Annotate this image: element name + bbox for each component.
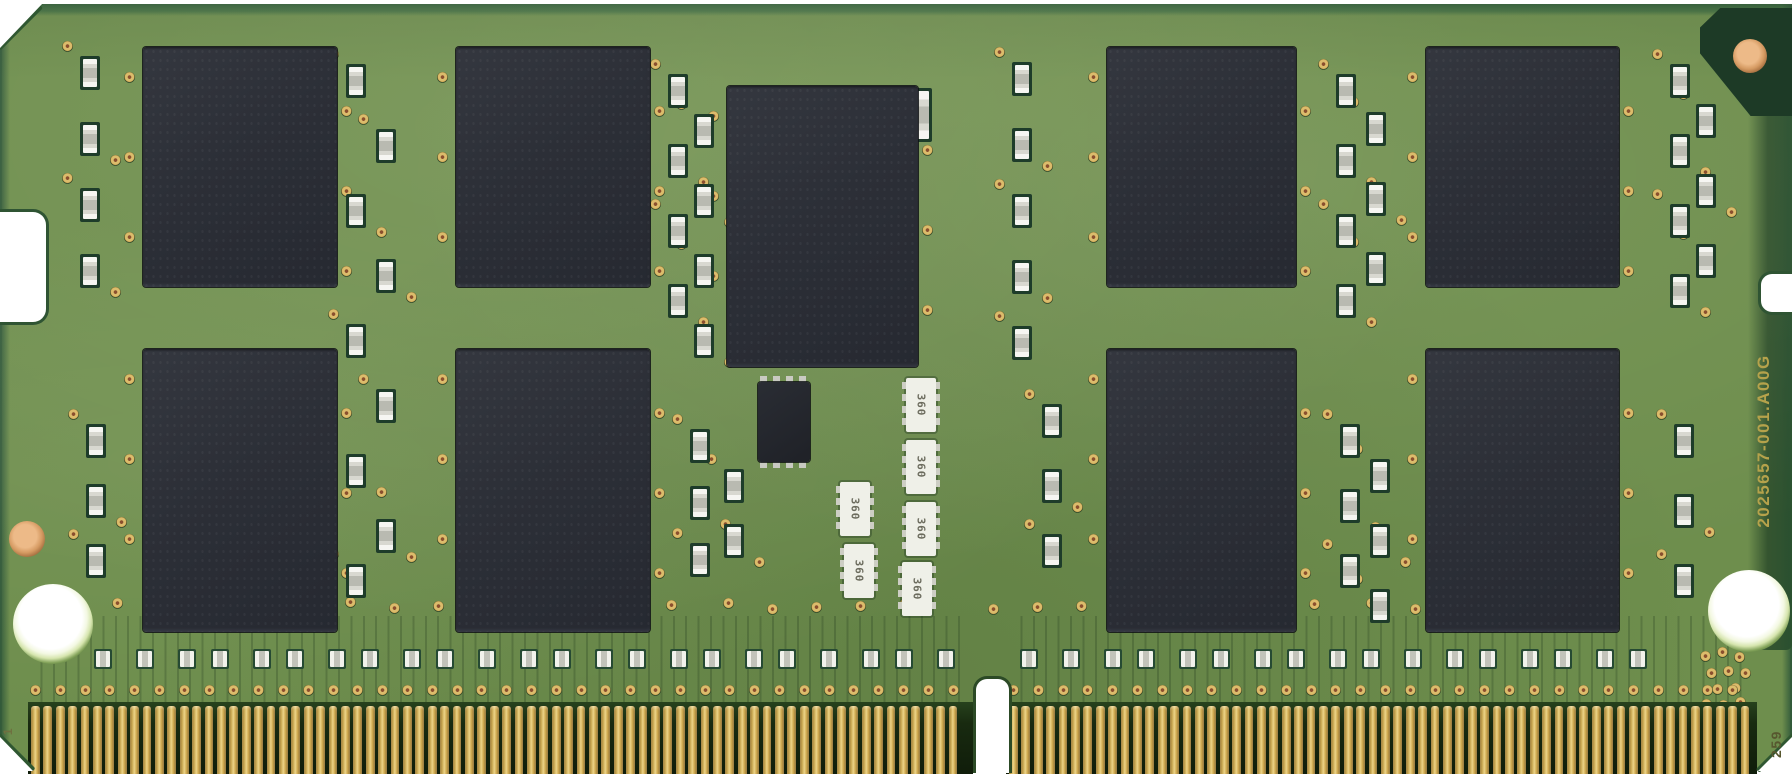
gold-pin xyxy=(812,706,821,774)
via-dot xyxy=(1366,317,1377,328)
via-dot xyxy=(654,408,665,419)
passive-component xyxy=(346,64,366,98)
part-number-text: 2025657-001.A00G xyxy=(1754,291,1774,591)
pin-one-text: 1 xyxy=(1,581,21,778)
passive-component xyxy=(1042,534,1062,568)
via-dot xyxy=(1734,652,1745,663)
gold-pin xyxy=(1703,706,1712,774)
via-dot xyxy=(406,292,417,303)
via-dot xyxy=(1656,409,1667,420)
via-dot xyxy=(1088,534,1099,545)
passive-component xyxy=(1674,424,1694,458)
via-dot xyxy=(994,47,1005,58)
gold-pin xyxy=(1455,706,1464,774)
gold-pin xyxy=(1319,706,1328,774)
gold-pin xyxy=(155,706,164,774)
via-dot xyxy=(1410,604,1421,615)
gold-pin xyxy=(1567,706,1576,774)
via-dot xyxy=(1300,266,1311,277)
via-dot xyxy=(358,114,369,125)
via-dot xyxy=(328,309,339,320)
passive-component xyxy=(1670,64,1690,98)
via-dot xyxy=(376,487,387,498)
gold-pin xyxy=(316,706,325,774)
capacitor-small xyxy=(1554,649,1572,669)
via-dot xyxy=(437,232,448,243)
via-dot xyxy=(112,598,123,609)
via-dot xyxy=(1717,647,1728,658)
copper-pad-circle xyxy=(1733,39,1767,73)
via-dot xyxy=(1042,293,1053,304)
gold-pin xyxy=(143,706,152,774)
via-dot xyxy=(922,305,933,316)
gold-pin xyxy=(1232,706,1241,774)
capacitor-small xyxy=(1287,649,1305,669)
via-dot xyxy=(1076,601,1087,612)
left-edge-notch xyxy=(0,209,49,325)
via-dot xyxy=(1712,684,1723,695)
gold-pin xyxy=(453,706,462,774)
gold-pin xyxy=(651,706,660,774)
capacitor-small xyxy=(520,649,538,669)
via-dot xyxy=(1088,72,1099,83)
via-dot xyxy=(625,685,636,696)
via-dot xyxy=(427,685,438,696)
gold-pin xyxy=(1356,706,1365,774)
via-dot xyxy=(228,685,239,696)
capacitor-small xyxy=(1104,649,1122,669)
gold-pin xyxy=(1369,706,1378,774)
gold-pin xyxy=(825,706,834,774)
passive-component xyxy=(80,56,100,90)
via-dot xyxy=(1454,685,1465,696)
gold-pin xyxy=(1096,706,1105,774)
passive-component xyxy=(668,214,688,248)
via-dot xyxy=(672,528,683,539)
gold-pin xyxy=(1691,706,1700,774)
gold-pin xyxy=(725,706,734,774)
passive-component xyxy=(376,519,396,553)
via-dot xyxy=(1578,685,1589,696)
via-dot xyxy=(1652,189,1663,200)
passive-component xyxy=(1340,424,1360,458)
via-dot xyxy=(437,72,448,83)
gold-pin xyxy=(1158,706,1167,774)
gold-pin xyxy=(1195,706,1204,774)
dram-chip xyxy=(727,86,918,367)
gold-pin xyxy=(949,706,958,774)
via-dot xyxy=(994,179,1005,190)
via-dot xyxy=(476,685,487,696)
dram-chip xyxy=(1107,349,1296,632)
via-dot xyxy=(1032,602,1043,613)
via-dot xyxy=(1033,685,1044,696)
via-dot xyxy=(767,604,778,615)
gold-pin xyxy=(614,706,623,774)
passive-component xyxy=(80,188,100,222)
via-dot xyxy=(179,685,190,696)
capacitor-small xyxy=(1521,649,1539,669)
photo-of-ram-module: 3603603603603603602025657-001.A00G2591 xyxy=(0,0,1792,778)
capacitor-small xyxy=(328,649,346,669)
gold-pin xyxy=(676,706,685,774)
via-dot xyxy=(376,227,387,238)
passive-component xyxy=(1370,459,1390,493)
via-dot xyxy=(811,602,822,613)
via-dot xyxy=(116,517,127,528)
via-dot xyxy=(654,186,665,197)
small-ic-pins-bottom xyxy=(760,462,808,468)
via-dot xyxy=(1380,685,1391,696)
gold-pin xyxy=(378,706,387,774)
gold-pin xyxy=(924,706,933,774)
gold-pin xyxy=(403,706,412,774)
via-dot xyxy=(1182,685,1193,696)
gold-pin xyxy=(1654,706,1663,774)
gold-pin xyxy=(837,706,846,774)
gold-pin xyxy=(1245,706,1254,774)
gold-pin xyxy=(1344,706,1353,774)
via-dot xyxy=(437,374,448,385)
via-dot xyxy=(923,685,934,696)
passive-component xyxy=(668,144,688,178)
via-dot xyxy=(341,266,352,277)
via-dot xyxy=(389,603,400,614)
via-dot xyxy=(922,225,933,236)
capacitor-small xyxy=(211,649,229,669)
via-dot xyxy=(68,409,79,420)
via-dot xyxy=(1623,408,1634,419)
gold-pin xyxy=(626,706,635,774)
gold-pin xyxy=(1555,706,1564,774)
gold-pin xyxy=(1257,706,1266,774)
via-dot xyxy=(1727,685,1738,696)
board-edge-top xyxy=(0,4,1792,16)
gold-pin xyxy=(205,706,214,774)
gold-pin xyxy=(56,706,65,774)
via-dot xyxy=(1702,685,1713,696)
gold-pin xyxy=(1170,706,1179,774)
via-dot xyxy=(110,287,121,298)
via-dot xyxy=(700,685,711,696)
resistor-network: 360 xyxy=(844,544,874,598)
resistor-network-label: 360 xyxy=(915,394,928,417)
via-dot xyxy=(1623,266,1634,277)
via-dot xyxy=(55,685,66,696)
via-dot xyxy=(650,199,661,210)
via-dot xyxy=(1740,668,1751,679)
passive-component xyxy=(1696,244,1716,278)
via-dot xyxy=(402,685,413,696)
via-dot xyxy=(1024,389,1035,400)
resistor-network: 360 xyxy=(906,502,936,556)
capacitor-small xyxy=(1596,649,1614,669)
via-dot xyxy=(1322,409,1333,420)
capacitor-small xyxy=(94,649,112,669)
capacitor-small xyxy=(1629,649,1647,669)
gold-pin xyxy=(763,706,772,774)
capacitor-small xyxy=(403,649,421,669)
via-dot xyxy=(124,152,135,163)
via-dot xyxy=(433,601,444,612)
via-dot xyxy=(1132,685,1143,696)
via-dot xyxy=(1300,186,1311,197)
via-dot xyxy=(452,685,463,696)
passive-component xyxy=(668,284,688,318)
passive-component xyxy=(86,424,106,458)
via-dot xyxy=(1088,374,1099,385)
via-dot xyxy=(988,604,999,615)
capacitor-small xyxy=(1179,649,1197,669)
via-dot xyxy=(1072,502,1083,513)
passive-component xyxy=(1336,144,1356,178)
via-dot xyxy=(1281,685,1292,696)
via-dot xyxy=(1706,668,1717,679)
via-dot xyxy=(352,685,363,696)
passive-component xyxy=(694,324,714,358)
passive-component xyxy=(376,259,396,293)
via-dot xyxy=(1206,685,1217,696)
gold-pin xyxy=(254,706,263,774)
via-dot xyxy=(994,311,1005,322)
via-dot xyxy=(1088,152,1099,163)
capacitor-small xyxy=(1062,649,1080,669)
via-dot xyxy=(848,685,859,696)
capacitor-small xyxy=(361,649,379,669)
gold-pin xyxy=(428,706,437,774)
capacitor-small xyxy=(478,649,496,669)
capacitor-small xyxy=(745,649,763,669)
gold-pin xyxy=(217,706,226,774)
gold-pin xyxy=(68,706,77,774)
gold-pin xyxy=(1505,706,1514,774)
via-dot xyxy=(501,685,512,696)
via-dot xyxy=(129,685,140,696)
via-dot xyxy=(1407,534,1418,545)
connector-key-notch xyxy=(973,676,1012,773)
capacitor-small xyxy=(595,649,613,669)
via-dot xyxy=(1300,106,1311,117)
via-dot xyxy=(1082,685,1093,696)
via-dot xyxy=(1088,232,1099,243)
resistor-network: 360 xyxy=(906,440,936,494)
passive-component xyxy=(1336,284,1356,318)
via-dot xyxy=(948,685,959,696)
via-dot xyxy=(1088,454,1099,465)
gold-pin xyxy=(564,706,573,774)
via-dot xyxy=(437,454,448,465)
gold-pin xyxy=(81,706,90,774)
via-dot xyxy=(124,72,135,83)
via-dot xyxy=(278,685,289,696)
via-dot xyxy=(774,685,785,696)
gold-pin xyxy=(1046,706,1055,774)
via-dot xyxy=(1300,568,1311,579)
gold-pin xyxy=(577,706,586,774)
gold-pin xyxy=(1108,706,1117,774)
passive-component xyxy=(690,543,710,577)
via-dot xyxy=(328,685,339,696)
dram-chip xyxy=(1426,349,1619,632)
gold-pin xyxy=(1666,706,1675,774)
via-dot xyxy=(1405,685,1416,696)
gold-pin xyxy=(1294,706,1303,774)
via-dot xyxy=(1396,215,1407,226)
via-dot xyxy=(1318,199,1329,210)
dram-chip xyxy=(1426,47,1619,287)
via-dot xyxy=(799,685,810,696)
via-dot xyxy=(675,685,686,696)
gold-pin xyxy=(329,706,338,774)
gold-pin xyxy=(477,706,486,774)
via-dot xyxy=(551,685,562,696)
gold-pin xyxy=(1083,706,1092,774)
via-dot xyxy=(1024,519,1035,530)
gold-pin xyxy=(465,706,474,774)
via-dot xyxy=(124,534,135,545)
via-dot xyxy=(650,59,661,70)
passive-component xyxy=(724,524,744,558)
gold-pin xyxy=(1183,706,1192,774)
via-dot xyxy=(1623,488,1634,499)
small-ic-chip xyxy=(758,382,810,462)
via-dot xyxy=(253,685,264,696)
capacitor-small xyxy=(895,649,913,669)
via-dot xyxy=(1603,685,1614,696)
via-dot xyxy=(666,600,677,611)
resistor-network: 360 xyxy=(902,562,932,616)
passive-component xyxy=(1042,469,1062,503)
gold-pin xyxy=(1517,706,1526,774)
via-dot xyxy=(1318,59,1329,70)
via-dot xyxy=(406,552,417,563)
passive-component xyxy=(1012,62,1032,96)
gold-pin xyxy=(601,706,610,774)
resistor-network-label: 360 xyxy=(849,498,862,521)
gold-pin xyxy=(862,706,871,774)
gold-pin xyxy=(1418,706,1427,774)
gold-pin xyxy=(180,706,189,774)
gold-pin xyxy=(750,706,759,774)
passive-component xyxy=(376,129,396,163)
passive-component xyxy=(694,254,714,288)
passive-component xyxy=(1696,104,1716,138)
capacitor-small xyxy=(937,649,955,669)
gold-pin xyxy=(1393,706,1402,774)
capacitor-small xyxy=(1404,649,1422,669)
gold-pin xyxy=(589,706,598,774)
passive-component xyxy=(1370,524,1390,558)
gold-pin xyxy=(118,706,127,774)
via-dot xyxy=(1355,685,1366,696)
via-dot xyxy=(526,685,537,696)
via-dot xyxy=(154,685,165,696)
via-dot xyxy=(437,152,448,163)
capacitor-small xyxy=(703,649,721,669)
via-dot xyxy=(1628,685,1639,696)
gold-pin xyxy=(1406,706,1415,774)
gold-pin xyxy=(688,706,697,774)
gold-pin xyxy=(1021,706,1030,774)
gold-pin xyxy=(1629,706,1638,774)
via-dot xyxy=(1623,106,1634,117)
gold-pin xyxy=(738,706,747,774)
via-dot xyxy=(341,488,352,499)
dram-chip xyxy=(456,349,650,632)
capacitor-small xyxy=(286,649,304,669)
via-dot xyxy=(1407,374,1418,385)
corner-number-text: 259 xyxy=(1768,594,1788,778)
via-dot xyxy=(1700,307,1711,318)
passive-component xyxy=(1340,489,1360,523)
passive-component xyxy=(346,564,366,598)
passive-component xyxy=(1340,554,1360,588)
passive-component xyxy=(80,122,100,156)
via-dot xyxy=(1652,49,1663,60)
gold-pin xyxy=(502,706,511,774)
resistor-network-label: 360 xyxy=(853,560,866,583)
resistor-network: 360 xyxy=(906,378,936,432)
gold-pin xyxy=(515,706,524,774)
via-dot xyxy=(1322,539,1333,550)
via-dot xyxy=(1309,599,1320,610)
gold-pin xyxy=(800,706,809,774)
via-dot xyxy=(1107,685,1118,696)
gold-pin xyxy=(899,706,908,774)
gold-pin xyxy=(1269,706,1278,774)
via-dot xyxy=(1623,568,1634,579)
gold-pin xyxy=(31,706,40,774)
passive-component xyxy=(1674,564,1694,598)
via-dot xyxy=(1623,186,1634,197)
capacitor-small xyxy=(553,649,571,669)
passive-component xyxy=(1696,174,1716,208)
via-dot xyxy=(377,685,388,696)
capacitor-small xyxy=(1137,649,1155,669)
via-dot xyxy=(124,374,135,385)
gold-pin xyxy=(849,706,858,774)
gold-pin xyxy=(552,706,561,774)
gold-pin xyxy=(1071,706,1080,774)
via-dot xyxy=(1678,685,1689,696)
passive-component xyxy=(1336,214,1356,248)
via-dot xyxy=(341,106,352,117)
via-dot xyxy=(358,374,369,385)
gold-pin xyxy=(775,706,784,774)
via-dot xyxy=(898,685,909,696)
gold-pin xyxy=(192,706,201,774)
resistor-network-label: 360 xyxy=(915,456,928,479)
gold-pin xyxy=(1579,706,1588,774)
via-dot xyxy=(576,685,587,696)
gold-pin xyxy=(242,706,251,774)
gold-pin xyxy=(291,706,300,774)
gold-pin xyxy=(1728,706,1737,774)
passive-component xyxy=(1670,274,1690,308)
via-dot xyxy=(341,408,352,419)
passive-component xyxy=(1370,589,1390,623)
capacitor-small xyxy=(1362,649,1380,669)
via-dot xyxy=(1306,685,1317,696)
via-dot xyxy=(654,266,665,277)
via-dot xyxy=(749,685,760,696)
via-dot xyxy=(672,414,683,425)
gold-pin xyxy=(267,706,276,774)
passive-component xyxy=(80,254,100,288)
passive-component xyxy=(1012,260,1032,294)
via-dot xyxy=(1529,685,1540,696)
dram-chip xyxy=(1107,47,1296,287)
